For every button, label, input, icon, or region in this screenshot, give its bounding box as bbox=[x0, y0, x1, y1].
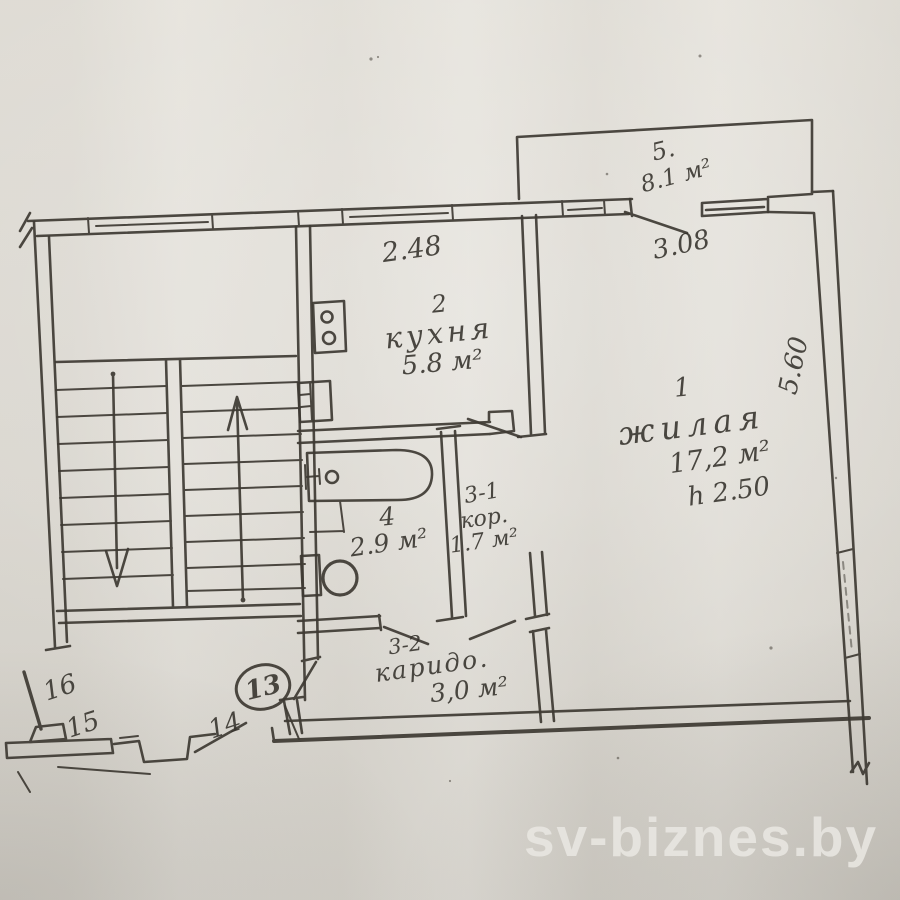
label-marker-14: 14 bbox=[205, 707, 246, 746]
balcony-window bbox=[702, 199, 768, 216]
label-balcony-number: 5. bbox=[649, 134, 678, 167]
label-apartment-number: 13 bbox=[242, 669, 284, 707]
kitchen-sink-icon bbox=[298, 381, 332, 422]
bathtub-icon bbox=[307, 450, 432, 532]
left-exterior-wall bbox=[34, 222, 70, 650]
scanned-floor-plan-photo: 5. 8.1 м² 3.08 2.48 2 кухня 5.8 м² 1 жил… bbox=[0, 0, 900, 900]
top-exterior-wall bbox=[20, 199, 632, 247]
stair-direction-arrow-down-icon bbox=[106, 372, 128, 586]
living-west-wall bbox=[526, 552, 554, 722]
kitchen-living-wall bbox=[518, 215, 546, 437]
label-kitchen-area: 5.8 м² bbox=[400, 345, 484, 382]
label-living-number: 1 bbox=[672, 372, 692, 404]
bath-faucet-icon bbox=[305, 465, 338, 489]
label-dim-kitchen-width: 2.48 bbox=[379, 230, 444, 269]
label-bathroom-area: 2.9 м² bbox=[347, 523, 430, 563]
kitchen-stove-icon bbox=[313, 301, 346, 353]
toilet-icon bbox=[301, 555, 357, 596]
bathroom-south-wall bbox=[298, 615, 381, 633]
label-marker-16: 16 bbox=[40, 669, 81, 708]
bathroom-north-wall bbox=[298, 411, 514, 443]
label-dim-balcony-width: 3.08 bbox=[650, 224, 713, 265]
balcony-door bbox=[625, 199, 687, 233]
stair-direction-arrow-up-icon bbox=[228, 397, 247, 602]
staircase bbox=[56, 226, 320, 700]
label-corridor-area: 1.7 м² bbox=[448, 524, 520, 558]
label-dim-living-depth: 5.60 bbox=[773, 334, 814, 397]
right-exterior-wall bbox=[768, 191, 869, 784]
label-living-ceiling: h 2.50 bbox=[686, 471, 772, 512]
watermark: sv-biznes.by bbox=[524, 806, 878, 868]
bottom-wall bbox=[272, 701, 869, 741]
hallway-corridor-door bbox=[470, 621, 515, 639]
floor-plan-drawing: 5. 8.1 м² 3.08 2.48 2 кухня 5.8 м² 1 жил… bbox=[0, 0, 900, 900]
